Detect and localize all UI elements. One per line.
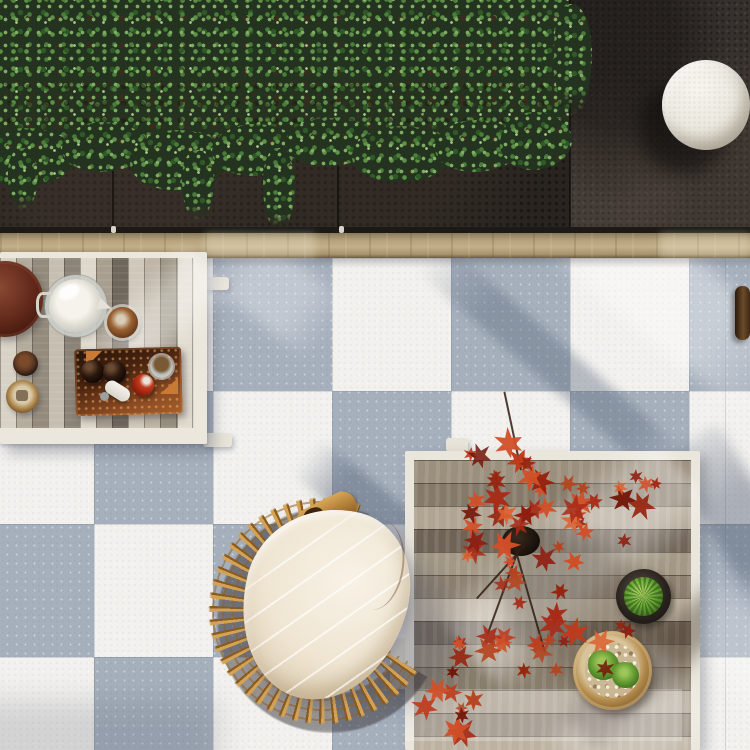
terrace-scene	[0, 0, 750, 750]
beam-highlight	[205, 233, 315, 258]
bottle-cap	[100, 392, 109, 401]
dark-bottle	[81, 360, 104, 383]
beam-highlight	[660, 233, 750, 258]
succulent-green	[624, 577, 663, 616]
sphere-lamp-texture	[662, 60, 750, 150]
pitcher-handle	[36, 292, 53, 318]
right-table-leg	[446, 438, 468, 452]
beam-peg	[111, 226, 116, 233]
red-jar	[132, 374, 154, 396]
glass-on-tray	[150, 355, 173, 378]
corner-shadow	[0, 700, 220, 750]
succulent-green	[612, 662, 639, 688]
small-clay-pot	[13, 351, 38, 376]
left-coffee-table	[0, 252, 207, 444]
amber-drink-glass	[107, 307, 138, 338]
beam-peg	[339, 226, 344, 233]
jar-lid-mark	[16, 390, 28, 401]
edge-hanging-object	[735, 286, 750, 340]
left-table-leg	[203, 433, 232, 447]
